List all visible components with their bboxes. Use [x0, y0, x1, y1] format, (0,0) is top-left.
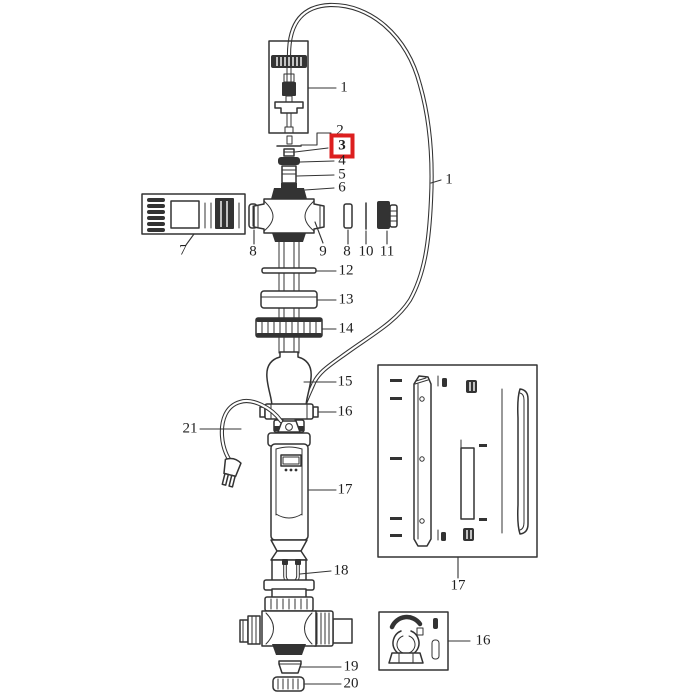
- oring-8-right: [344, 204, 352, 228]
- callout-8-right: 8: [343, 245, 351, 260]
- callout-16-box: 16: [476, 634, 491, 649]
- power-plug: [219, 457, 241, 488]
- end-cap-11: [377, 201, 397, 229]
- callout-11: 11: [380, 245, 394, 260]
- callout-21: 21: [183, 422, 198, 437]
- main-body-17: [268, 420, 310, 582]
- leader-lines: [186, 88, 470, 684]
- callout-7: 7: [179, 244, 187, 259]
- callout-10: 10: [359, 245, 374, 260]
- collar-13: [261, 291, 317, 308]
- callout-8-left: 8: [249, 245, 257, 260]
- callout-17-box: 17: [451, 579, 466, 594]
- callout-6: 6: [338, 181, 346, 196]
- callout-18: 18: [334, 564, 349, 579]
- bottom-fitting: [240, 611, 352, 655]
- bottom-collar: [264, 580, 314, 611]
- callout-1-lamp-box: 1: [340, 81, 348, 96]
- ferrule-19: [279, 661, 301, 673]
- cover-15: [267, 352, 311, 432]
- detail-box-17: [378, 365, 537, 557]
- callout-9: 9: [319, 245, 327, 260]
- diagram-canvas: [0, 0, 700, 700]
- exploded-parts-diagram: 1 2 3 4 5 6 7 8 9 8 10 11 1 12 13 14 15 …: [0, 0, 700, 700]
- callout-12: 12: [339, 264, 354, 279]
- callout-1-cable: 1: [445, 173, 453, 188]
- cross-fitting-9: [254, 199, 324, 242]
- detail-box-16: [379, 612, 448, 670]
- ring-nut-14: [256, 318, 322, 337]
- callout-20: 20: [344, 677, 359, 692]
- callout-17-main: 17: [338, 483, 353, 498]
- callout-14: 14: [339, 322, 354, 337]
- callout-15: 15: [338, 375, 353, 390]
- callout-16-main: 16: [338, 405, 353, 420]
- washer-12: [262, 268, 316, 273]
- quartz-sleeve-box-7: [142, 194, 245, 234]
- callout-19: 19: [344, 660, 359, 675]
- ring-nut-20: [273, 677, 304, 691]
- callout-13: 13: [339, 293, 354, 308]
